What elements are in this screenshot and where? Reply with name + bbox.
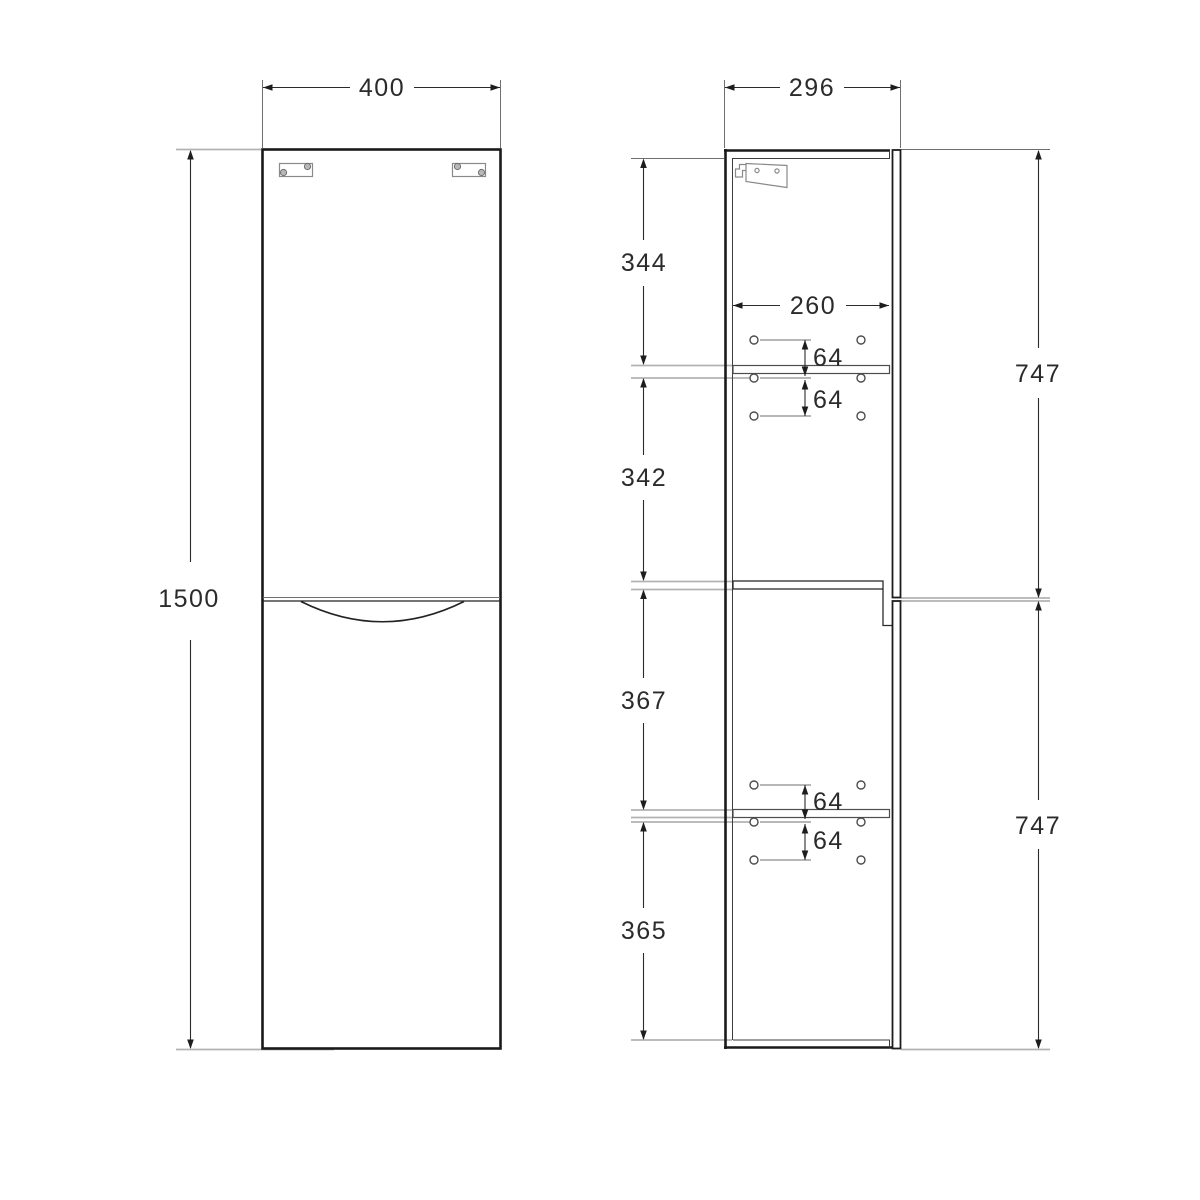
arrowhead-up-icon (187, 150, 194, 160)
screw-hole-icon (755, 168, 759, 172)
arrowhead-down-icon (1035, 589, 1042, 599)
dim-lower-door-height: 747 (1015, 601, 1061, 1049)
dim-label-seg-upper-mid: 342 (621, 464, 667, 492)
pin-hole (857, 856, 865, 864)
arrowhead-down-icon (802, 851, 809, 861)
hanger-hook-icon (736, 165, 747, 178)
dim-seg-top: 344 (621, 159, 667, 366)
pin-hole (857, 336, 865, 344)
arrowhead-up-icon (802, 340, 809, 350)
side-view: 296 260 344 342 (621, 74, 1061, 1050)
dim-label-pin-pitch: 64 (813, 788, 844, 816)
arrowhead-down-icon (640, 572, 647, 582)
arrowhead-up-icon (802, 380, 809, 390)
cabinet-outline (263, 150, 501, 1049)
front-view: 400 1500 (158, 74, 500, 1050)
pin-hole (857, 412, 865, 420)
handle-notch (883, 589, 893, 626)
wall-bracket-right (453, 163, 486, 176)
dim-label-seg-bottom: 365 (621, 917, 667, 945)
arrowhead-right-icon (491, 84, 501, 91)
screw-icon (280, 169, 286, 175)
dim-seg-lower-mid: 367 (621, 590, 667, 811)
shelf-pin-holes (750, 336, 865, 864)
arrowhead-up-icon (1035, 150, 1042, 160)
dim-label-pin-pitch: 64 (813, 386, 844, 414)
dim-pin-pitch-bottom-b: 64 (802, 824, 844, 860)
arrowhead-down-icon (640, 1031, 647, 1041)
arrowhead-up-icon (640, 159, 647, 169)
screw-hole-icon (775, 169, 779, 173)
dim-label-depth: 296 (789, 74, 835, 102)
dim-interior-width: 260 (733, 292, 889, 320)
arrowhead-up-icon (640, 590, 647, 600)
dim-label-seg-lower-mid: 367 (621, 687, 667, 715)
lower-shelf (733, 810, 890, 818)
arrowhead-down-icon (802, 407, 809, 417)
bracket-plate (746, 164, 787, 188)
dim-pin-pitch-top-b: 64 (802, 380, 844, 416)
pin-hole (750, 374, 758, 382)
arrowhead-left-icon (725, 84, 735, 91)
side-extension-lines (631, 150, 1050, 1050)
door-split (263, 598, 500, 622)
cabinet-technical-drawing: 400 1500 (0, 0, 1200, 1200)
arrowhead-down-icon (640, 356, 647, 366)
arrowhead-left-icon (733, 302, 743, 309)
hanger-bracket-side (736, 164, 788, 188)
pin-hole (750, 856, 758, 864)
arrowhead-down-icon (1035, 1040, 1042, 1050)
dim-seg-bottom: 365 (621, 822, 667, 1040)
dim-label-seg-top: 344 (621, 249, 667, 277)
middle-divider (733, 581, 883, 589)
wall-bracket-left (280, 163, 313, 176)
handle-recess-curve (301, 602, 464, 622)
dim-front-height: 1500 (158, 150, 334, 1050)
arrowhead-right-icon (880, 302, 890, 309)
dim-label-pin-pitch: 64 (813, 344, 844, 372)
screw-icon (454, 163, 460, 169)
dim-label-width: 400 (359, 74, 405, 102)
arrowhead-down-icon (187, 1040, 194, 1050)
pin-hole (750, 781, 758, 789)
arrowhead-up-icon (802, 824, 809, 834)
pin-hole (857, 374, 865, 382)
upper-door-edge (893, 150, 901, 598)
arrowhead-up-icon (1035, 601, 1042, 611)
dim-label-height: 1500 (158, 585, 220, 613)
pin-hole (750, 336, 758, 344)
dim-front-width: 400 (263, 74, 501, 148)
lower-door-edge (893, 601, 901, 1049)
dim-label-pin-pitch: 64 (813, 827, 844, 855)
pin-hole (750, 412, 758, 420)
pin-hole (750, 818, 758, 826)
dim-label-lower-door: 747 (1015, 812, 1061, 840)
dim-side-depth: 296 (725, 74, 901, 148)
arrowhead-down-icon (640, 801, 647, 811)
dim-label-interior-width: 260 (790, 292, 836, 320)
arrowhead-up-icon (640, 378, 647, 388)
dim-upper-door-height: 747 (1015, 150, 1061, 598)
arrowhead-left-icon (263, 84, 273, 91)
pin-hole (857, 818, 865, 826)
arrowhead-right-icon (891, 84, 901, 91)
upper-shelf (733, 366, 890, 374)
arrowhead-up-icon (802, 785, 809, 795)
screw-icon (304, 163, 310, 169)
dim-label-upper-door: 747 (1015, 360, 1061, 388)
arrowhead-up-icon (640, 822, 647, 832)
screw-icon (478, 169, 484, 175)
carcass (724, 149, 901, 1049)
pin-hole (857, 781, 865, 789)
dim-seg-upper-mid: 342 (621, 378, 667, 581)
